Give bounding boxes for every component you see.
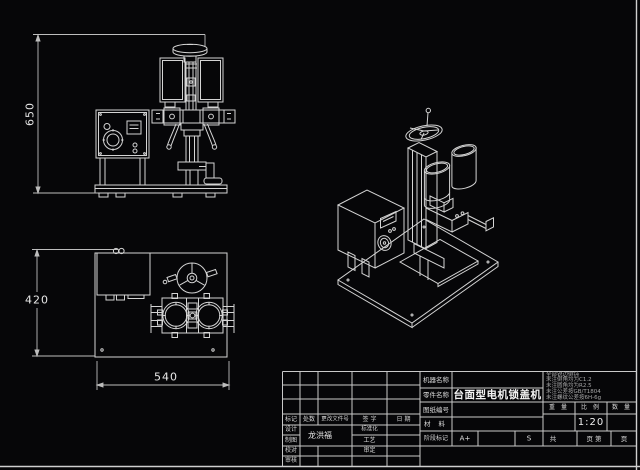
tb-role-standardization: 标准化 [361,427,378,433]
tb-drawing-no-label: 图纸编号 [423,406,449,413]
tech-notes-block: 全部锐边倒钝 未注倒角均为C1.2 未注圆角均为R2.5 未注公差按GB/T18… [546,373,636,403]
tb-rev-signature-label: 签 字 [363,417,377,423]
tb-role-process: 工艺 [363,438,375,444]
tb-weight-label: 重 量 [549,405,569,411]
tb-rev-change-file-label: 更改文件号 [321,417,349,423]
tb-part-name-label: 零件名称 [423,392,449,399]
tb-stage-mark-value-s: S [527,435,531,442]
tb-scale-label: 比 例 [581,405,601,411]
isometric-view-drawing [338,108,498,327]
dimension-lines [32,35,229,391]
tb-sheet-mid-label: 页 第 [586,435,601,442]
tb-scale-value: 1:20 [578,418,604,428]
tb-material-label: 材 料 [424,421,448,428]
tb-role-approval: 审定 [363,448,375,454]
front-view-drawing [95,44,235,197]
tb-stage-mark-label: 阶段标记 [424,436,448,442]
tb-rev-qty-label: 处数 [303,417,315,423]
tb-stage-mark-value-a: A+ [460,435,471,442]
tb-machine-name-label: 机器名称 [423,376,449,383]
tb-rev-mark-label: 标记 [285,417,297,423]
dim-540-label: 540 [152,372,180,383]
tb-part-name-value: 台面型电机锁盖机 [454,390,542,401]
plan-view-drawing [95,248,234,357]
tb-designer-name: 龙洪福 [308,432,332,440]
tb-role-design: 设计 [285,427,297,433]
tb-role-audit: 审核 [285,458,297,464]
tb-rev-date-label: 日 期 [397,417,411,423]
tb-quantity-label: 数 量 [612,405,632,411]
tb-sheet-total-label: 共 [550,435,557,442]
cad-drawing-canvas: 650 420 540 标记 处数 更改文件号 签 字 日 期 设计 制图 校对… [0,0,640,470]
tb-role-draft: 制图 [285,438,297,444]
tech-note-line-5: 未注螺纹公差按6H-6g [546,396,636,402]
dim-650-label: 650 [25,100,36,128]
dim-420-label: 420 [23,295,51,306]
tb-role-proof: 校对 [285,448,297,454]
cad-line-art [0,0,640,470]
tb-sheet-end-label: 页 [621,435,628,442]
